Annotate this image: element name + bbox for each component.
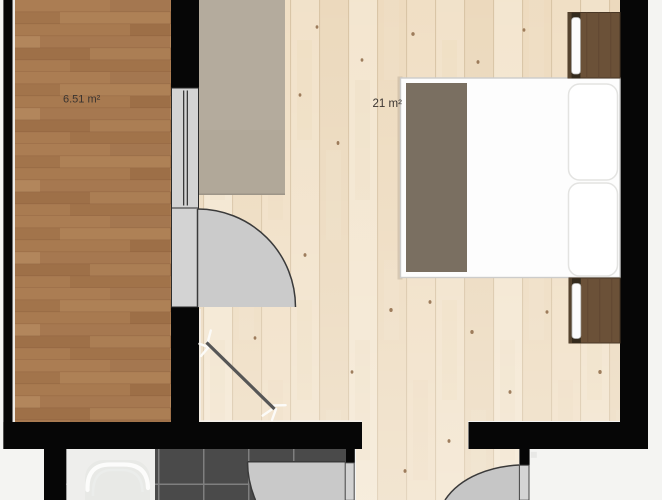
svg-text:21 m²: 21 m² bbox=[373, 98, 403, 110]
svg-text:6.51 m²: 6.51 m² bbox=[63, 94, 101, 106]
